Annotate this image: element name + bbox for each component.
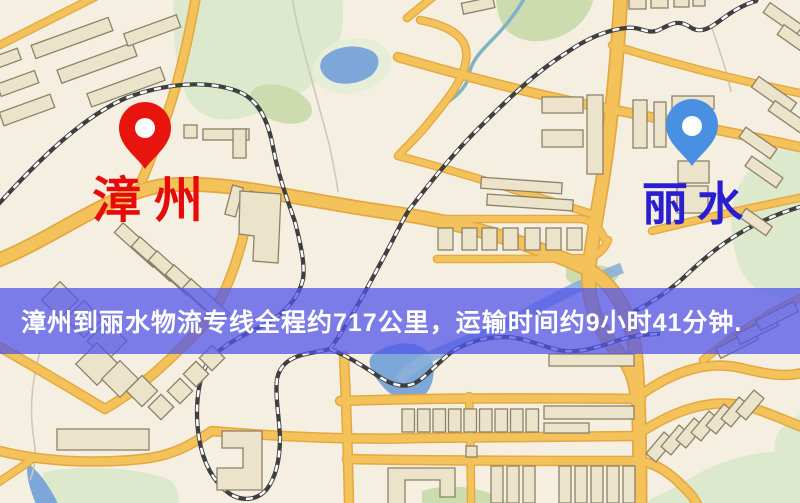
map-screenshot: 漳州 丽水 漳州到丽水物流专线全程约717公里，运输时间约9小时41分钟. <box>0 0 800 503</box>
route-info-text: 漳州到丽水物流专线全程约717公里，运输时间约9小时41分钟. <box>21 303 742 339</box>
destination-city-label: 丽水 <box>642 181 752 227</box>
origin-city-label: 漳州 <box>92 176 216 225</box>
map-canvas <box>0 0 800 503</box>
route-info-banner: 漳州到丽水物流专线全程约717公里，运输时间约9小时41分钟. <box>0 288 800 354</box>
